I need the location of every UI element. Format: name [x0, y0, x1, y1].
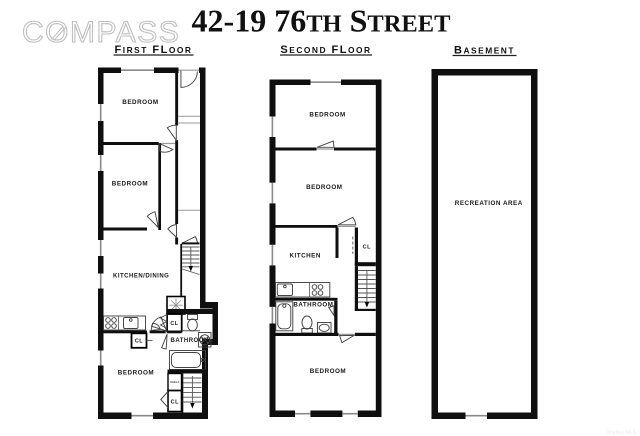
svg-text:BASEMENT: BASEMENT	[454, 45, 515, 57]
svg-text:CL: CL	[363, 244, 371, 250]
svg-text:CL: CL	[135, 339, 143, 345]
svg-text:CL: CL	[170, 321, 178, 327]
svg-text:BATHROOM: BATHROOM	[171, 338, 210, 344]
svg-text:BEDROOM: BEDROOM	[310, 368, 346, 375]
svg-text:FIRST FLOOR: FIRST FLOOR	[115, 44, 193, 56]
svg-text:SECOND FLOOR: SECOND FLOOR	[280, 44, 371, 56]
svg-text:OneKey MLS: OneKey MLS	[606, 430, 636, 436]
svg-text:BEDROOM: BEDROOM	[112, 181, 148, 188]
svg-text:BEDROOM: BEDROOM	[309, 112, 345, 119]
svg-text:CL: CL	[171, 400, 179, 406]
svg-text:KITCHEN: KITCHEN	[289, 253, 321, 260]
svg-text:SHELF: SHELF	[170, 380, 180, 384]
svg-text:BEDROOM: BEDROOM	[306, 184, 342, 191]
svg-text:BATHROOM: BATHROOM	[293, 302, 333, 309]
svg-text:RECREATION AREA: RECREATION AREA	[455, 200, 523, 207]
svg-text:BEDROOM: BEDROOM	[118, 369, 154, 376]
svg-text:KITCHEN/DINING: KITCHEN/DINING	[113, 273, 169, 279]
svg-text:BEDROOM: BEDROOM	[122, 99, 158, 106]
